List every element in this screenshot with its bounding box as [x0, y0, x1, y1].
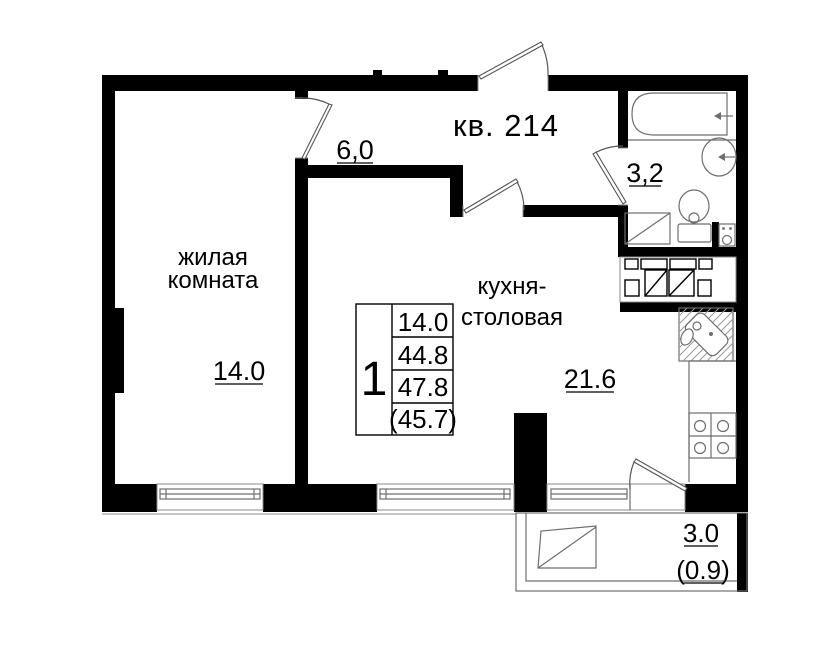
vent-shaft-block — [620, 257, 736, 302]
kitchen-fixtures — [678, 308, 736, 482]
kitchen-label-1: кухня- — [477, 273, 546, 300]
total-area-value: 47.8 — [398, 372, 449, 402]
wall-bath-bottom — [618, 247, 737, 257]
balcony-window-recess — [547, 484, 685, 510]
entrance-door-leaf — [479, 42, 543, 79]
living-door-leaf — [302, 104, 332, 159]
wall-bath-left-upper — [618, 91, 628, 148]
kitchen-area-label: 21.6 — [564, 364, 617, 394]
balcony-area-label: 3.0 — [683, 518, 719, 548]
wall-bottom-2 — [263, 484, 377, 512]
stove-burner — [695, 443, 706, 454]
kitchen-label-2: столовая — [461, 304, 563, 331]
wall-left — [102, 75, 115, 512]
vent-cell — [625, 280, 639, 296]
windows — [102, 484, 685, 514]
kitchen-sink-faucet — [693, 322, 701, 330]
stove-burner — [695, 421, 706, 432]
wall-right — [736, 75, 748, 512]
wall-tick-1 — [373, 70, 382, 76]
window-2-recess — [377, 484, 514, 510]
wall-top-right — [548, 75, 748, 91]
wall-bottom-pillar — [514, 413, 547, 512]
balcony-door-leaf — [634, 459, 687, 491]
wall-pilaster — [112, 308, 124, 393]
window-1-recess — [157, 484, 263, 510]
wall-bottom-3 — [685, 484, 748, 512]
washbasin-faucet-arrow-icon — [718, 153, 725, 161]
stove-burner — [718, 443, 729, 454]
water-heater-dot-1 — [722, 227, 725, 230]
area-no-balcony-value: 44.8 — [398, 340, 449, 370]
apartment-number-label: кв. 214 — [453, 108, 559, 143]
stove-burner — [718, 421, 729, 432]
living-room-label-2: комната — [168, 267, 259, 294]
wall-corridor — [523, 205, 618, 217]
living-room-area-label: 14.0 — [213, 356, 266, 386]
vent-cell — [625, 259, 638, 269]
wall-tick-2 — [438, 70, 448, 76]
rooms-count: 1 — [361, 353, 388, 406]
hallway-area-label: 6,0 — [336, 135, 374, 165]
vent-cell — [641, 259, 667, 269]
vent-cell-diagonal — [669, 270, 694, 296]
toilet-tank — [678, 224, 711, 242]
balcony-weighted-area-label: (0.9) — [676, 555, 729, 585]
wall-balcony-right — [737, 513, 748, 592]
bathtub-faucet-arrow-icon — [714, 112, 721, 120]
bath-door-leaf — [593, 152, 626, 204]
living-area-value: 14.0 — [398, 307, 449, 337]
vent-cell — [699, 259, 712, 269]
floor-plan: 1 14.0 44.8 47.8 (45.7) кв. 214 6,0 жила… — [0, 0, 828, 665]
wall-hallway — [295, 165, 450, 178]
kitchen-sink-drain — [709, 332, 713, 336]
bathtub — [632, 93, 727, 135]
vent-cell — [670, 259, 696, 269]
balcony-glazing-diagonal — [538, 527, 596, 568]
toilet-bowl — [679, 190, 709, 222]
vent-cell — [698, 280, 711, 296]
vent-cell-diagonal — [645, 270, 667, 296]
wall-bottom-1 — [102, 484, 157, 512]
weighted-area-value: (45.7) — [389, 404, 457, 434]
wall-top-left — [102, 75, 478, 91]
wall-hallway-jog — [450, 165, 463, 217]
wall-bath-stub — [712, 222, 719, 247]
water-heater-dial — [723, 236, 732, 245]
wall-vent-bottom — [620, 302, 736, 312]
washing-machine-diagonal — [625, 213, 670, 244]
entrance-door-swing — [541, 43, 548, 76]
water-heater-dot-2 — [729, 227, 732, 230]
wall-living — [295, 158, 308, 484]
area-table: 1 14.0 44.8 47.8 (45.7) — [356, 304, 457, 435]
floor-plan-page: 1 14.0 44.8 47.8 (45.7) кв. 214 6,0 жила… — [0, 0, 828, 665]
bathroom-area-label: 3,2 — [626, 158, 664, 188]
kitchen-door-leaf — [464, 179, 518, 213]
